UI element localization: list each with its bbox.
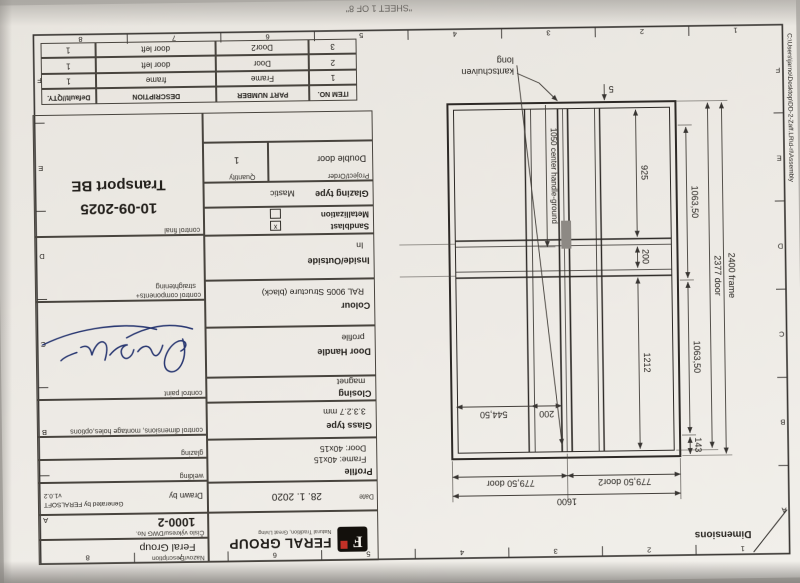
dwg-no-cell: Číslo výkresu/DWG No. 1000-2 [38, 513, 208, 540]
description-label: Nazov/Description [152, 554, 205, 562]
zone-row: E [777, 154, 782, 163]
glazing-type-value: Mastic [270, 188, 295, 198]
closing-cell: Closing magnet [206, 375, 376, 402]
parts-table: ITEM NO. PART NUMBER DESCRIPTION Default… [40, 38, 357, 105]
dim-925: 925 [639, 165, 649, 180]
zone-row: A [782, 506, 787, 515]
control-straightening-label: straightening [156, 282, 196, 290]
feral-logo-icon: F [337, 526, 367, 551]
dim-1063-b: 1063,50 [690, 186, 700, 219]
dim-2377-door: 2377 door [713, 255, 724, 296]
parts-cell: 3 [308, 39, 356, 55]
logo-letter: F [353, 532, 363, 550]
zone-col: 1 [741, 544, 745, 553]
door-handle-label: Door Handle [317, 346, 371, 357]
quantity-cell: Quantity 1 [203, 142, 269, 183]
parts-cell: 1 [41, 73, 96, 89]
dim-1063-a: 1063,50 [692, 341, 702, 374]
door-frame [447, 101, 680, 459]
dim-200-v: 200 [640, 249, 650, 264]
zone-col: 5 [359, 31, 363, 40]
control-components-label: control components+ [136, 291, 201, 299]
parts-cell: Door2 [215, 39, 308, 56]
zone-row: F [775, 66, 780, 75]
zone-col: 3 [546, 28, 550, 37]
transport-stamp: 10-09-2025 Transport BE [34, 173, 203, 220]
dim-1600: 1600 [557, 497, 577, 507]
parts-header-description: DESCRIPTION [96, 87, 216, 104]
zone-col: 4 [453, 30, 457, 39]
door-handle-value: profile [341, 332, 364, 342]
profile-frame-value: Frame: 40x15 [314, 454, 367, 465]
callout-line1: kantschuiven [461, 66, 514, 77]
parts-cell: door left [95, 41, 215, 58]
dwg-no-value: 1000-2 [158, 515, 196, 530]
parts-cell: frame [96, 72, 216, 89]
dim-5-gap: 5 [609, 84, 614, 94]
zone-col: 2 [640, 27, 644, 36]
inside-outside-value: In [356, 241, 363, 251]
zone-col: 1 [733, 26, 737, 35]
dimension-labels: 1212 200 925 143 1063,50 1063,50 2377 do… [475, 82, 740, 508]
zone-col: 2 [647, 546, 651, 555]
dim-544: 544,50 [480, 410, 508, 420]
sandblast-cell: Sandblast x Metallization [204, 205, 374, 235]
glass-type-value: 3.3.2.7 mm [323, 406, 366, 417]
control-components-cell: control components+ straightening [34, 235, 205, 302]
glass-type-cell: Glass type 3.3.2.7 mm [207, 400, 378, 439]
parts-cell: Frame [216, 70, 309, 87]
dwg-no-label: Číslo výkresu/DWG No. [136, 529, 205, 537]
drawn-by-cell: Drawn by Generated by FERALSOFT v1.0.2 [38, 481, 208, 515]
zone-row: C [778, 330, 784, 339]
door-handle-cell: Door Handle profile [205, 325, 376, 377]
stamp-date: 10-09-2025 [35, 195, 203, 220]
dim-779-door2: 779,50 door2 [598, 477, 651, 488]
closing-label: Closing [338, 388, 371, 398]
dim-1212: 1212 [642, 352, 652, 372]
glass-type-label: Glass type [326, 420, 372, 431]
titleblock-logo-cell: F FERAL GROUP Natural Tradition, Great L… [208, 510, 379, 562]
dim-200-w: 200 [539, 409, 554, 419]
profile-label: Profile [344, 466, 372, 476]
signature [6, 305, 197, 388]
inside-outside-label: Inside/Outside [307, 255, 369, 266]
control-final-label: control final [164, 226, 200, 233]
control-welding-cell: welding [37, 458, 207, 483]
zone-col: 4 [460, 548, 464, 557]
dim-779-door: 779,50 door [487, 478, 535, 489]
callout-kantschuiven: kantschuiven long [461, 55, 514, 77]
control-dimensions-cell: control dimensions, montage holes,option… [36, 398, 207, 437]
generated-by-value: Generated by FERALSOFT [44, 500, 124, 508]
dim-143: 143 [693, 437, 703, 452]
logo-red-accent [340, 541, 347, 549]
file-path: C:\Users\jarno\Desktop\DD-2-Zaff.LR\d-rl… [785, 33, 794, 183]
dim-2400-frame: 2400 frame [726, 253, 737, 299]
description-cell: Nazov/Description Feral Group [38, 538, 208, 565]
company-name: FERAL GROUP [229, 535, 332, 551]
control-glazing-label: glazing [181, 449, 203, 456]
colour-value: RAL 9005 Structure (black) [262, 287, 364, 298]
parts-cell: 2 [309, 54, 357, 70]
profile-cell: Profile Frame: 40x15 Door: 40x15 [207, 437, 378, 482]
project-order-cell: Project/Order Double door [268, 140, 374, 181]
dim-handle-ground: 1050 center handle-ground [549, 128, 559, 224]
parts-header-partnumber: PART NUMBER [216, 86, 309, 103]
callout-line2: long [497, 55, 514, 65]
sheet-number-label: "SHEET 1 OF 8" [346, 3, 412, 14]
metallization-label: Metallization [321, 209, 369, 219]
closing-value: magnet [337, 376, 365, 386]
zone-row: D [777, 242, 783, 251]
parts-header-item: ITEM NO. [309, 85, 357, 101]
parts-cell: 1 [309, 70, 357, 86]
inside-outside-cell: Inside/Outside In [204, 233, 375, 280]
control-welding-label: welding [180, 472, 204, 479]
control-glazing-cell: glazing [37, 435, 207, 460]
parts-cell: Door [216, 55, 309, 72]
metallization-checkbox [270, 209, 281, 219]
version-value: v1.0.2 [44, 492, 62, 499]
quantity-value: 1 [234, 155, 239, 165]
door-handle-symbol [561, 221, 571, 249]
control-dimensions-label: control dimensions, montage holes,option… [53, 424, 203, 435]
sandblast-checkbox: x [270, 221, 281, 231]
date-label: Date [359, 492, 374, 499]
zone-row: B [780, 418, 785, 427]
description-value: Feral Group [139, 541, 195, 554]
sandblast-label: Sandblast [331, 221, 369, 231]
stamp-destination: Transport BE [34, 173, 202, 198]
project-order-label: Project/Order [328, 171, 370, 179]
zone-col: 3 [553, 547, 557, 556]
date-value: 28. 1. 2020 [272, 490, 322, 502]
drawn-by-label: Drawn by [169, 491, 203, 500]
colour-label: Colour [341, 300, 370, 310]
parts-cell: 1 [41, 58, 96, 74]
project-order-value: Double door [317, 153, 366, 164]
parts-cell: door left [96, 56, 216, 73]
parts-header-qty: Default//QTY. [41, 89, 96, 105]
scanned-drawing-page: 1 2 3 4 5 6 7 8 1 2 3 4 5 6 7 8 A B C D [0, 0, 800, 583]
parts-cell: 1 [40, 42, 95, 58]
profile-door-value: Door: 40x15 [320, 443, 366, 454]
control-final-cell: control final 10-09-2025 Transport BE [33, 113, 205, 237]
control-paint-cell: control paint [35, 300, 206, 400]
date-cell: Date 28. 1. 2020 [208, 480, 378, 512]
view-title: Dimensions [694, 528, 751, 540]
glazing-type-label: Glazing type [315, 188, 369, 199]
drawing-sheet: 1 2 3 4 5 6 7 8 1 2 3 4 5 6 7 8 A B C D [0, 0, 800, 583]
control-paint-label: control paint [164, 389, 202, 397]
colour-cell: Colour RAL 9005 Structure (black) [205, 278, 376, 327]
quantity-label: Quantity [229, 173, 255, 180]
view-corner-flag [753, 510, 788, 552]
glazing-type-cell: Glazing type Mastic [203, 180, 373, 207]
empty-cell [202, 110, 372, 142]
